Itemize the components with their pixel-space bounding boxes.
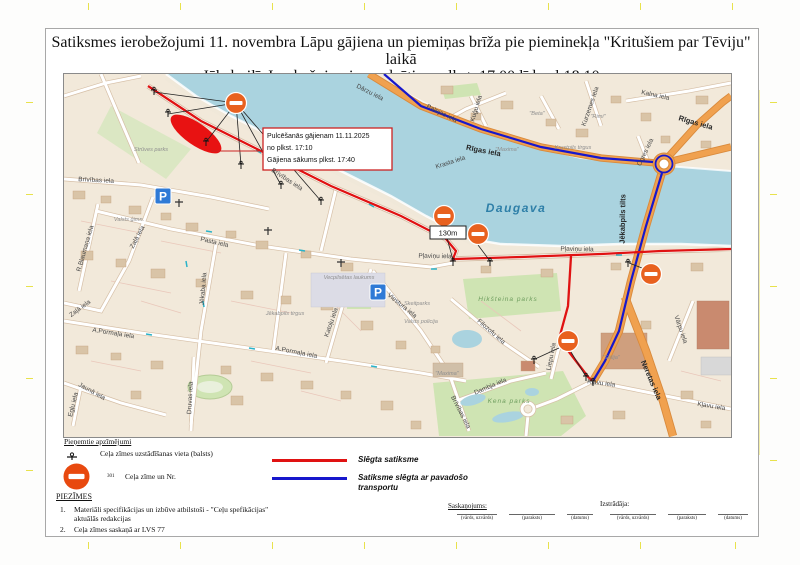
legend-heading: Pieņemtie apzīmējumi — [64, 437, 131, 446]
callout-line-1: Pulcēšanās gājienam 11.11.2025 — [267, 133, 370, 140]
callout-line-3: Gājiena sākums plkst. 17:40 — [267, 157, 355, 164]
distance-label: 130m — [430, 226, 466, 239]
note-text: Ceļa zīmes saskaņā ar LVS 77 — [74, 525, 165, 534]
distance-text: 130m — [439, 229, 458, 238]
assembly-callout: Pulcēšanās gājienam 11.11.2025 no plkst.… — [263, 128, 392, 170]
title-line-1: Satiksmes ierobežojumi 11. novembra Lāpu… — [45, 34, 757, 68]
signature-field-name: (vārds, uzvārds) — [610, 514, 656, 521]
legend-item-sign-post: Ceļa zīmes uzstādīšanas vieta (balsts) — [100, 449, 213, 458]
place-label: Skeitparks — [404, 301, 430, 307]
parking-icon — [155, 188, 171, 204]
callout-line-2: no plkst. 17:10 — [267, 145, 313, 152]
sign-post-legend-icon — [66, 451, 82, 461]
signature-field-date: (datums) — [567, 514, 593, 521]
notes-heading: PIEZĪMES — [56, 492, 92, 501]
place-label: Krustpils tirgus — [555, 145, 592, 151]
note-item: 2. Ceļa zīmes saskaņā ar LVS 77 — [60, 525, 275, 534]
park-label: Kena parks — [488, 398, 531, 405]
author-fields: (vārds, uzvārds) (paraksts) (datums) — [610, 514, 748, 521]
legend-sign-number: 301 — [107, 474, 115, 479]
park-label: Strūves parks — [134, 147, 168, 153]
bridge-label: Jēkabpils tilts — [618, 194, 628, 244]
traffic-restriction-map: P — [63, 73, 732, 438]
note-text: Materiāli specifikācijas un izbūve atbil… — [74, 505, 275, 523]
legend-item-road-sign: Ceļa zīme un Nr. — [125, 472, 176, 481]
place-label: Jēkabpils tirgus — [265, 311, 305, 317]
approval-heading: Saskaņojums: — [448, 502, 487, 510]
place-label: "Sēlija" — [602, 355, 621, 361]
closed-traffic-line-sample — [272, 459, 347, 462]
notes-list: 1. Materiāli specifikācijas un izbūve at… — [60, 505, 275, 536]
signature-field-date: (datums) — [718, 514, 748, 521]
river-label: Daugava — [486, 201, 547, 215]
street-label: Pļaviņu iela — [418, 253, 452, 261]
note-number: 1. — [60, 505, 74, 523]
signature-field-signature: (paraksts) — [509, 514, 555, 521]
park-label: Hikšteina parks — [478, 296, 537, 303]
place-label: "Maxima" — [435, 371, 460, 377]
signature-field-name: (vārds, uzvārds) — [457, 514, 497, 521]
escort-traffic-line-sample — [272, 477, 347, 480]
signature-field-signature: (paraksts) — [668, 514, 706, 521]
note-item: 1. Materiāli specifikācijas un izbūve at… — [60, 505, 275, 523]
escort-traffic-label: Satiksme slēgta ar pavadošo transportu — [358, 473, 490, 493]
place-label: Vecpilsētas laukums — [324, 275, 375, 281]
parking-icon — [370, 284, 386, 300]
street-label: Pļaviņu iela — [560, 246, 594, 254]
note-number: 2. — [60, 525, 74, 534]
place-label: "Rimi" — [590, 114, 606, 120]
plan-document: Satiksmes ierobežojumi 11. novembra Lāpu… — [0, 0, 800, 565]
approval-fields: (vārds, uzvārds) (paraksts) (datums) — [457, 514, 593, 521]
closed-traffic-label: Slēgta satiksme — [358, 455, 498, 465]
place-label: "Beta" — [529, 111, 545, 117]
place-label: "Maxima" — [495, 147, 520, 153]
author-heading: Izstrādāja: — [600, 500, 629, 508]
no-entry-legend-icon — [63, 463, 90, 490]
place-label: Valsts ģimn. — [114, 216, 144, 223]
place-label: Valsts policija — [404, 319, 438, 325]
